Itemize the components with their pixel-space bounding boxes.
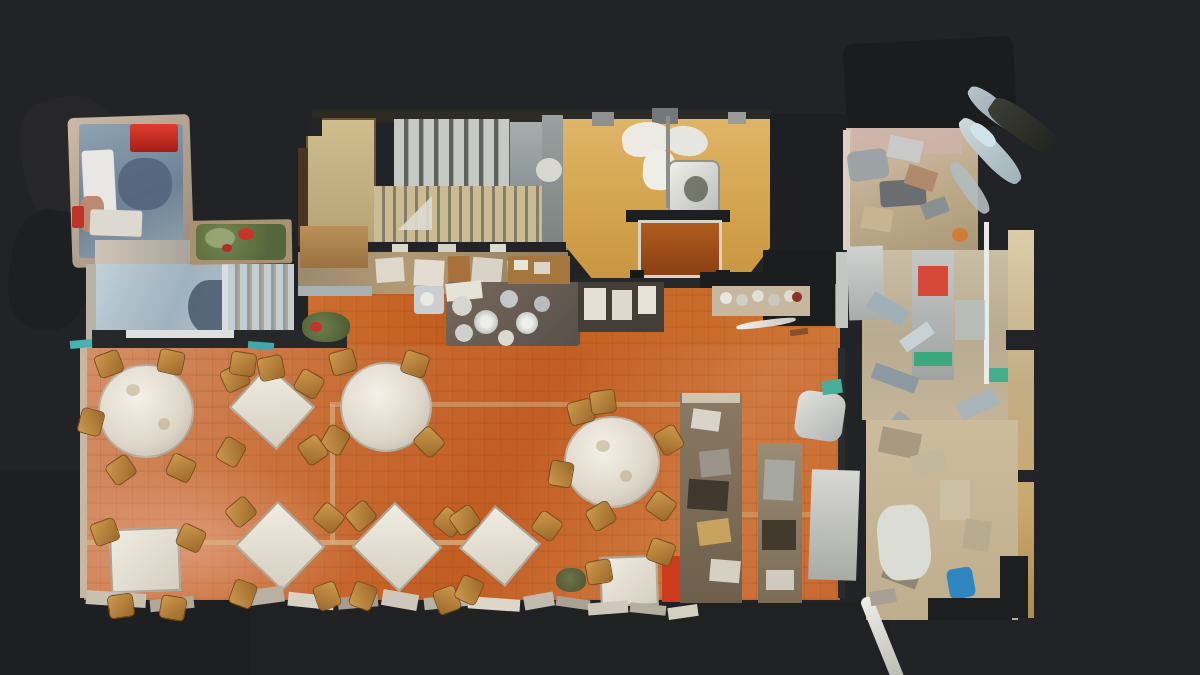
dining-chair [228, 350, 257, 377]
plate [720, 292, 732, 304]
bar-clutter-3 [687, 479, 729, 512]
planter-red-flowers-2 [222, 244, 232, 252]
kitchen-orange-pot [952, 228, 968, 242]
entrance-sill [126, 330, 234, 338]
office-red-bit [72, 206, 84, 228]
table-setting-3 [596, 440, 610, 452]
booth-white-1 [375, 257, 405, 283]
side-plant-2 [556, 568, 586, 592]
planter-red-flowers [238, 228, 254, 240]
bar-clutter-5 [709, 559, 741, 584]
plate [498, 330, 514, 346]
dining-chair [158, 594, 188, 622]
kitchen-green-strip [914, 352, 952, 366]
dining-left-wall [80, 346, 87, 598]
backdrop-smudge-bottom [250, 602, 890, 675]
container-white-3 [638, 286, 656, 314]
teal-bit-right-wing [821, 379, 843, 396]
upper-wood-counter-dish [514, 260, 528, 270]
bar2-clutter-3 [766, 570, 794, 590]
kitchen-shard-4 [955, 300, 985, 340]
plate [792, 292, 802, 302]
dining-chair [106, 592, 135, 619]
dining-chair [588, 388, 617, 415]
plate [768, 294, 780, 306]
plate [534, 296, 550, 312]
wc-wall-tab-3 [728, 112, 746, 124]
plate [455, 324, 473, 342]
lower-hall-clutter-5 [962, 518, 992, 551]
plate [516, 312, 538, 334]
office-clutter-dark [118, 158, 172, 210]
round-table-1 [98, 364, 194, 458]
dining-chair [156, 348, 186, 377]
right-wing-left-wall [843, 130, 850, 250]
blue-accent-bin [946, 566, 977, 600]
lower-hall-clutter-4 [940, 480, 970, 520]
left-wood-bench [300, 226, 368, 268]
white-chair-blob [875, 503, 933, 582]
silver-bits-right-of-shadow [836, 252, 848, 328]
entrance-grill [228, 264, 294, 332]
round-table-3 [564, 416, 660, 508]
plate [452, 296, 472, 316]
floorplan-canvas[interactable] [0, 0, 1200, 675]
bar-clutter-4 [696, 518, 731, 546]
dining-chair [547, 459, 575, 489]
plate [500, 290, 518, 308]
right-wing-clutter-1 [846, 147, 890, 182]
silver-cabinet [808, 469, 860, 581]
wc-machine-drum [684, 176, 708, 202]
container-white-2 [612, 290, 632, 320]
wc-pole [666, 116, 670, 208]
table-setting-4 [620, 470, 632, 482]
plate [474, 310, 498, 334]
stairs-white-blob [536, 158, 562, 182]
bar2-clutter-2 [762, 520, 796, 550]
dining-chair [584, 558, 614, 586]
bar-clutter-1 [691, 408, 722, 432]
bar2-clutter-1 [763, 459, 795, 501]
office-desk [90, 209, 143, 237]
kitchen-red-box [918, 266, 948, 296]
upper-wood-counter-dish-2 [534, 262, 550, 274]
wc-wall-tab-1 [592, 112, 614, 126]
plate [736, 294, 748, 306]
lower-hall-dark-cut-2 [928, 598, 1012, 620]
right-shelf-break-1 [1006, 330, 1036, 350]
bar-strip-1-top-edge [682, 393, 740, 403]
wc-table [638, 220, 722, 278]
container-white-1 [584, 288, 606, 320]
bar-clutter-2 [699, 449, 732, 478]
kitchen-green-strip-2 [986, 368, 1008, 382]
white-machine-top [793, 389, 847, 443]
plate [420, 292, 434, 306]
plate [752, 290, 764, 302]
table-setting-2 [158, 418, 170, 430]
booth-white-2 [413, 259, 444, 287]
landing-corner-notch [306, 118, 322, 136]
stairs-upper [394, 119, 510, 186]
table-setting [126, 384, 140, 396]
office-red-cabinet [130, 124, 178, 152]
side-plant-flower [310, 322, 322, 332]
left-bench-silver-front [298, 286, 372, 296]
stairs-lower [374, 186, 544, 246]
